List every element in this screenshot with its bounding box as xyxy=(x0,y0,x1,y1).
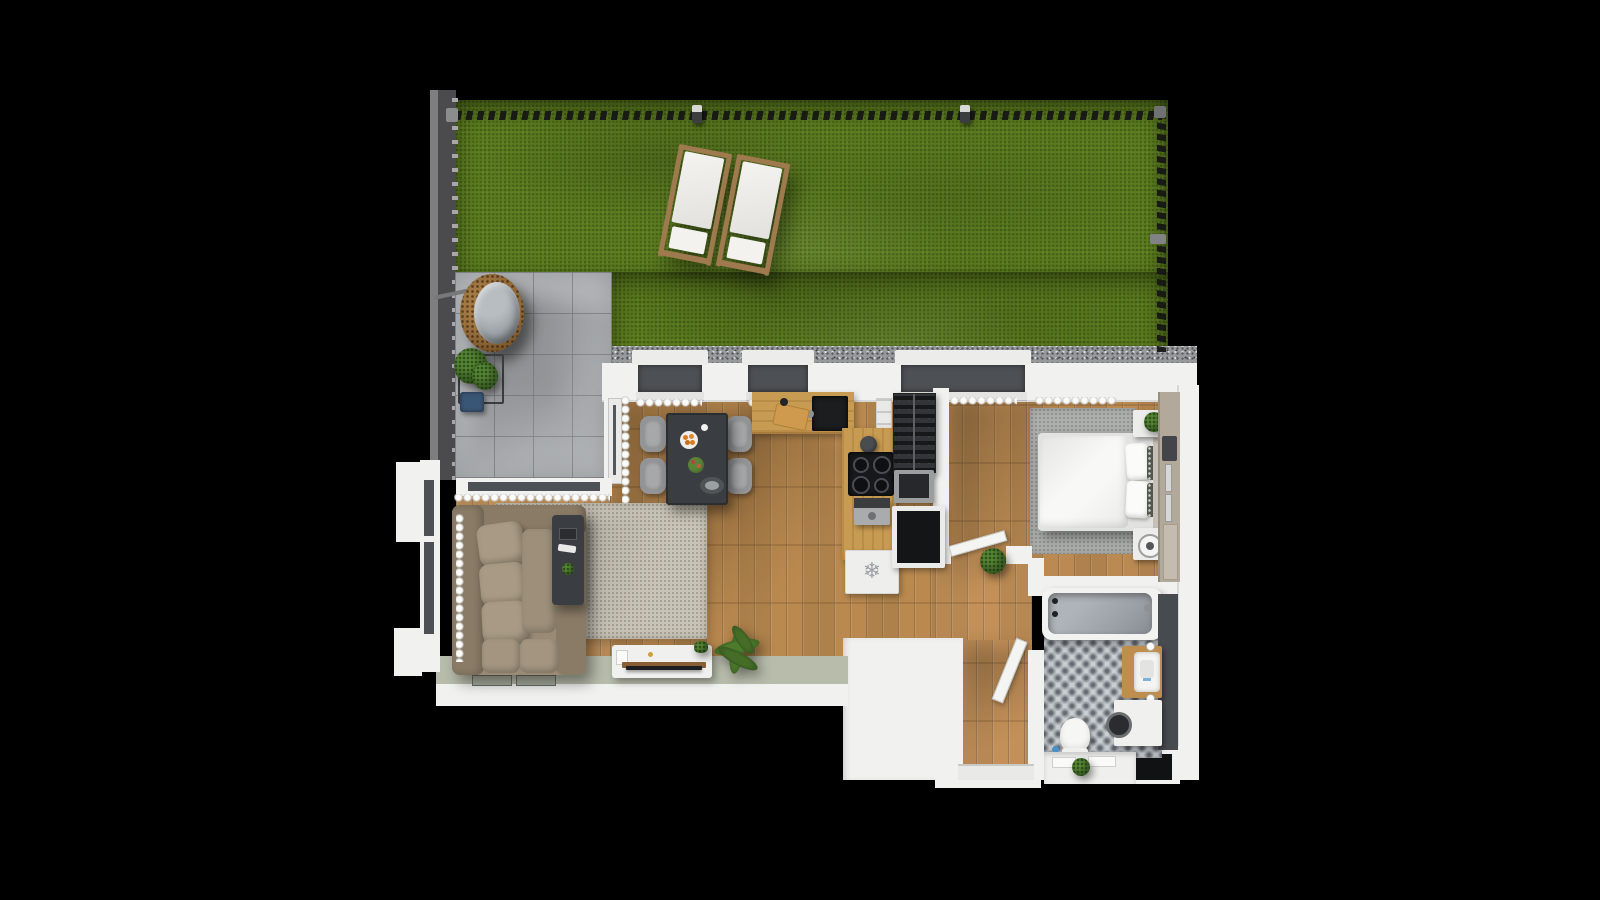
fence-corner-post xyxy=(1154,106,1166,118)
entrance-threshold xyxy=(958,764,1034,780)
sofa-corner-seat xyxy=(522,529,556,633)
curtain-dining-window xyxy=(622,396,635,504)
vanity-knob xyxy=(1146,642,1155,651)
hanging-egg-chair xyxy=(460,274,524,352)
bathroom-vanity xyxy=(1122,646,1162,698)
fence-connector xyxy=(1150,234,1166,244)
bathtub xyxy=(1042,588,1162,640)
curtain-window xyxy=(636,399,702,410)
palm-plant xyxy=(712,624,762,678)
washing-machine-door xyxy=(1106,712,1132,738)
garden-fence-right xyxy=(1157,113,1166,352)
freezer-snowflake-icon: ❄ xyxy=(863,561,881,583)
window-glass xyxy=(638,365,702,392)
bed-duvet xyxy=(1040,436,1128,528)
garden-boundary-wall-left xyxy=(430,90,456,480)
coffee-machine xyxy=(854,498,890,525)
serving-tray xyxy=(700,477,724,494)
wardrobe-mirror-panel xyxy=(1162,436,1177,461)
fridge-freezer: ❄ xyxy=(845,550,899,594)
wine-rack xyxy=(893,393,936,473)
terrace-seat-cushion xyxy=(460,392,484,412)
garden-fence-top xyxy=(456,111,1162,120)
tv-sideboard xyxy=(612,645,712,678)
bathroom-plant xyxy=(1072,758,1090,776)
wall-vent xyxy=(472,675,512,686)
bathtub-faucet xyxy=(1144,604,1152,612)
wardrobe-handle xyxy=(1165,464,1172,492)
bathroom-wall-left-upper xyxy=(1028,558,1044,596)
window-sill-outer xyxy=(895,350,1031,365)
floor-plan-render: ❄ xyxy=(0,0,1600,900)
wall-vent xyxy=(516,675,556,686)
curtain-bedroom-window xyxy=(950,397,1017,408)
coffee-table xyxy=(552,515,584,605)
exterior-wall-right xyxy=(1177,385,1199,780)
terrace-climbing-plant-leaf xyxy=(472,362,498,390)
wardrobe-handle xyxy=(1165,494,1172,522)
induction-cooktop xyxy=(848,452,894,496)
patio-living-glass xyxy=(468,482,600,491)
curtain-bedroom-window xyxy=(1035,397,1117,408)
window-sill-outer xyxy=(632,350,708,365)
sideboard-plant xyxy=(694,641,708,653)
coffee-table-candle xyxy=(558,544,577,553)
bathtub-drain xyxy=(1052,611,1058,617)
sofa-seat-cushion xyxy=(482,639,520,673)
sofa-seat-cushion xyxy=(520,639,558,673)
bathtub-drain xyxy=(1052,598,1058,604)
bathtub-basin xyxy=(1048,593,1152,634)
dining-chair xyxy=(640,458,666,494)
wall-block-bottom-center xyxy=(843,638,963,780)
toilet xyxy=(1060,718,1090,752)
wardrobe-panel xyxy=(1163,524,1178,580)
curtain-patio-door xyxy=(454,494,610,507)
pepper-mill xyxy=(780,398,788,406)
kettle xyxy=(860,436,877,453)
oven xyxy=(894,470,934,503)
coffee-table-book xyxy=(559,528,577,540)
sideboard-knob xyxy=(648,652,653,657)
window-glass-left xyxy=(424,480,434,536)
bathroom-wall-left-lower xyxy=(1028,650,1044,780)
wall-fence-connector xyxy=(446,108,458,122)
living-room-wall-bottom-face xyxy=(436,684,848,706)
sofa-armrest xyxy=(556,601,586,675)
window-glass xyxy=(901,365,1025,392)
garden-lamp xyxy=(960,105,970,123)
fruit-plate xyxy=(680,431,698,449)
flower-vase xyxy=(688,457,704,473)
exterior-wall-stub xyxy=(396,462,422,542)
vanity-sink xyxy=(1134,652,1160,692)
wardrobe xyxy=(1158,392,1180,582)
garden-lawn xyxy=(455,100,1168,272)
window-glass xyxy=(748,365,808,392)
dining-chair xyxy=(640,416,666,452)
table-cup xyxy=(701,424,708,431)
garden-lawn-lower xyxy=(610,272,1168,352)
window-glass-left xyxy=(424,542,434,634)
hallway-plant xyxy=(980,548,1006,574)
egg-chair-cushion xyxy=(474,282,520,344)
washing-machine xyxy=(1114,700,1162,746)
dining-chair xyxy=(726,416,752,452)
exterior-wall-stub xyxy=(394,628,422,676)
tv-panel xyxy=(626,666,702,670)
kitchen-sink xyxy=(812,396,848,431)
bathroom-ledge xyxy=(1044,752,1136,784)
window-sill-outer xyxy=(742,350,814,365)
entry-corridor-floor xyxy=(960,640,1032,780)
garden-lamp xyxy=(692,105,702,123)
coffee-table-plant xyxy=(562,563,574,575)
curtain-left-window xyxy=(456,514,469,662)
kitchen-island-counter xyxy=(892,506,945,568)
dining-table xyxy=(666,413,728,505)
dining-chair xyxy=(726,458,752,494)
patio-door-leaf xyxy=(608,398,622,484)
sofa-back-cushion xyxy=(475,520,526,568)
ledge-tray xyxy=(1088,756,1116,767)
